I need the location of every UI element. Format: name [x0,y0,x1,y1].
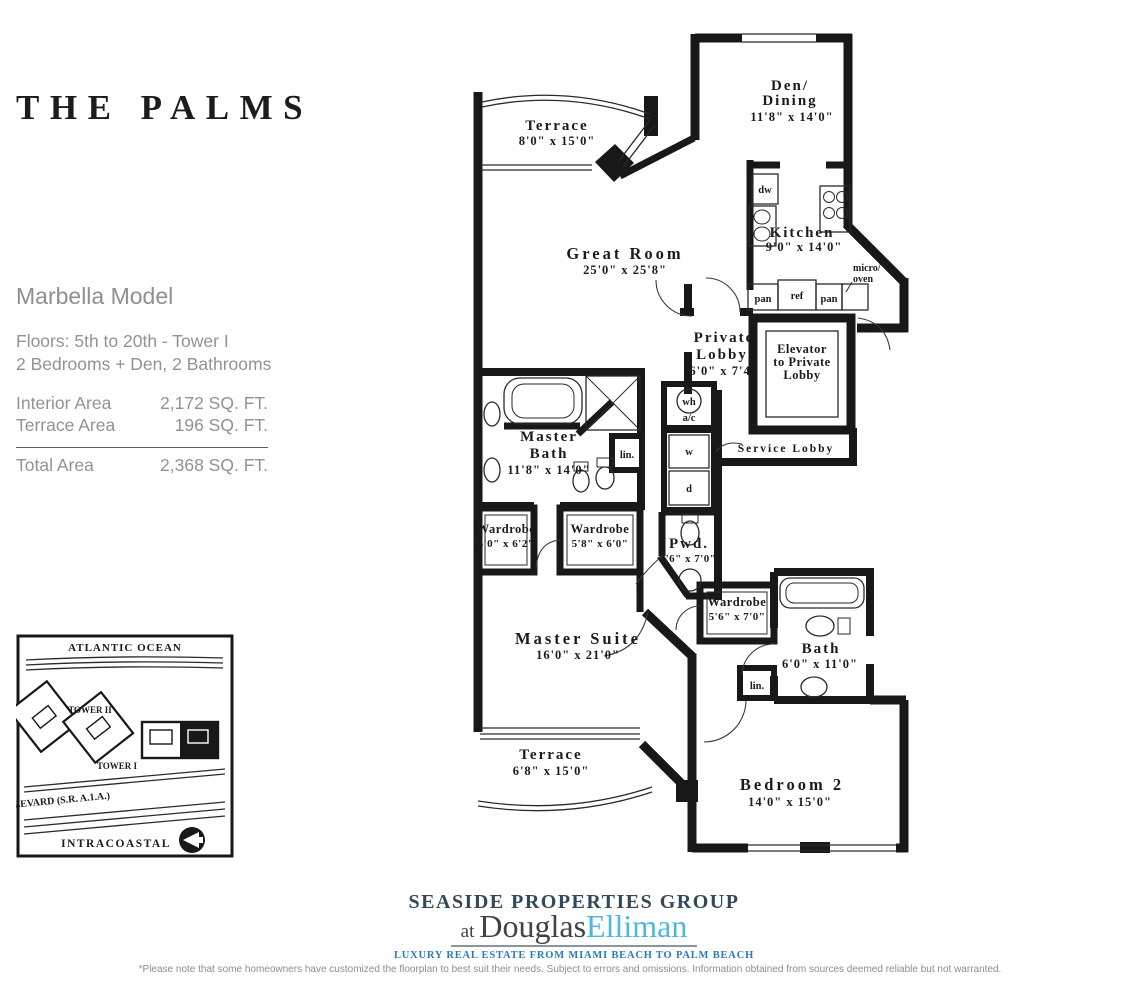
linen-label-2: lin. [750,681,765,692]
elevator-label-3: Lobby [783,368,820,382]
wardrobe-c-dims: 5'6" x 7'0" [709,611,766,623]
bath2-dims: 6'0" x 11'0" [782,657,858,671]
bath2-sink-icon [801,677,827,697]
brand-logo: atDouglasElliman [0,908,1140,945]
terrace-bottom-dims: 6'8" x 15'0" [513,764,590,778]
master-suite-label: Master Suite [515,629,641,648]
bath2-tub-icon [780,578,864,608]
private-lobby-dims: 6'0" x 7'4" [689,364,758,378]
den-dims: 11'8" x 14'0" [750,110,833,124]
terrace-bottom-label: Terrace [519,747,582,763]
dryer-label: d [686,484,692,495]
powder-dims: 3'6" x 7'0" [660,553,717,565]
master-bath-dims: 11'8" x 14'0" [507,463,590,477]
water-heater-label: wh [682,397,696,408]
micro-label-1: micro/ [853,263,881,274]
micro-oven-icon [842,284,868,310]
disclaimer-text: *Please note that some homeowners have c… [0,964,1140,975]
master-suite-dims: 16'0" x 21'0" [536,648,620,662]
master-bath-label-1: Master [520,429,578,445]
bedroom2-dims: 14'0" x 15'0" [748,795,832,809]
brand-divider [451,945,697,947]
den-label-1: Den/ [771,78,809,94]
brand-elliman: Elliman [586,908,687,944]
private-lobby-label-2: Lobby [696,347,748,363]
pantry-right-label: pan [821,294,838,305]
great-room-label: Great Room [566,244,683,263]
master-sink2-icon [484,458,500,482]
brand-douglas: Douglas [479,908,586,944]
powder-sink-icon [679,569,701,591]
pantry-left-label: pan [755,294,772,305]
bath2-label: Bath [802,641,841,657]
den-label-2: Dining [762,93,817,109]
floor-plan: Terrace 8'0" x 15'0" Den/ Dining 11'8" x… [0,0,1140,986]
master-sink1-icon [484,402,500,426]
dishwasher-label: dw [758,185,772,196]
powder-label: Pwd. [669,536,709,552]
linen-label-1: lin. [620,450,635,461]
kitchen-dims: 9'0" x 14'0" [766,240,843,254]
private-lobby-label-1: Private [694,330,755,346]
master-bath-label-2: Bath [530,446,569,462]
micro-label-2: oven [853,274,873,285]
flyer-page: THE PALMS Marbella Model Floors: 5th to … [0,0,1140,986]
refrigerator-label: ref [791,291,804,302]
service-lobby-label: Service Lobby [738,443,835,455]
terrace-top-dims: 8'0" x 15'0" [519,134,596,148]
washer-label: w [685,447,693,458]
brand-at: at [461,921,475,942]
shower-icon [586,376,640,430]
elevator-label-1: Elevator [777,342,827,356]
brand-tagline: LUXURY REAL ESTATE FROM MIAMI BEACH TO P… [0,950,1140,961]
terrace-top-label: Terrace [525,118,588,134]
elevator-label-2: to Private [773,355,830,369]
kitchen-label: Kitchen [770,225,835,241]
wardrobe-b-dims: 5'8" x 6'0" [572,538,629,550]
wardrobe-a-label: Wardrobe [477,522,536,536]
bedroom2-label: Bedroom 2 [740,775,844,794]
ac-label: a/c [683,413,696,424]
wardrobe-b-label: Wardrobe [571,522,630,536]
bath2-toilet-icon [806,616,850,636]
master-tub-icon [504,378,582,424]
great-room-dims: 25'0" x 25'8" [583,263,667,277]
wardrobe-c-label: Wardrobe [708,595,767,609]
wardrobe-a-dims: 4'0" x 6'2" [478,538,535,550]
